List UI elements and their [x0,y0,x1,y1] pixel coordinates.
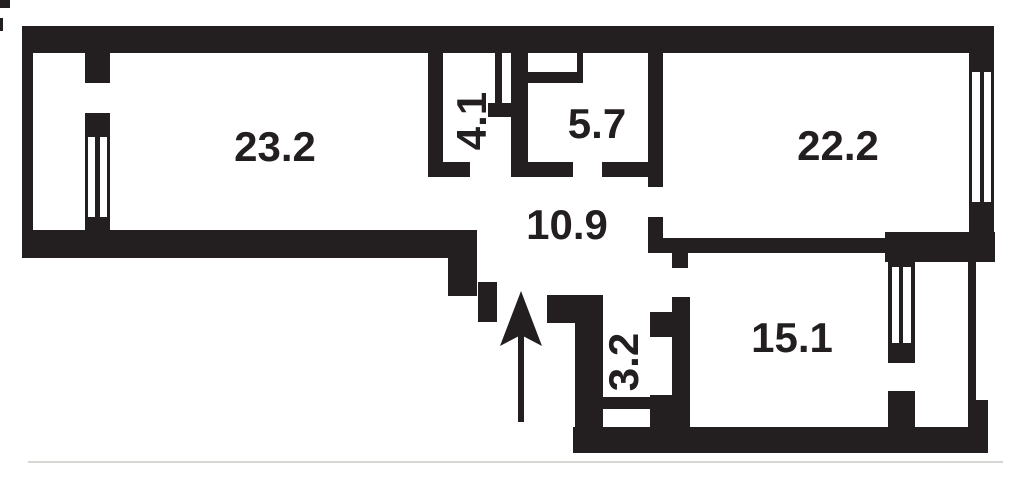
room-label-22-2: 22.2 [797,125,879,167]
room-label-5-7: 5.7 [568,103,626,145]
floor-plan: 23.2 4.1 5.7 10.9 22.2 3.2 15.1 [0,0,1024,481]
room-label-4-1: 4.1 [451,92,493,150]
room-label-15-1: 15.1 [751,317,833,359]
room-label-3-2: 3.2 [603,333,645,391]
room-label-10-9: 10.9 [526,204,608,246]
arrow-shaft-icon [518,334,524,422]
entrance-arrow-icon [0,0,1024,481]
room-label-23-2: 23.2 [234,126,316,168]
